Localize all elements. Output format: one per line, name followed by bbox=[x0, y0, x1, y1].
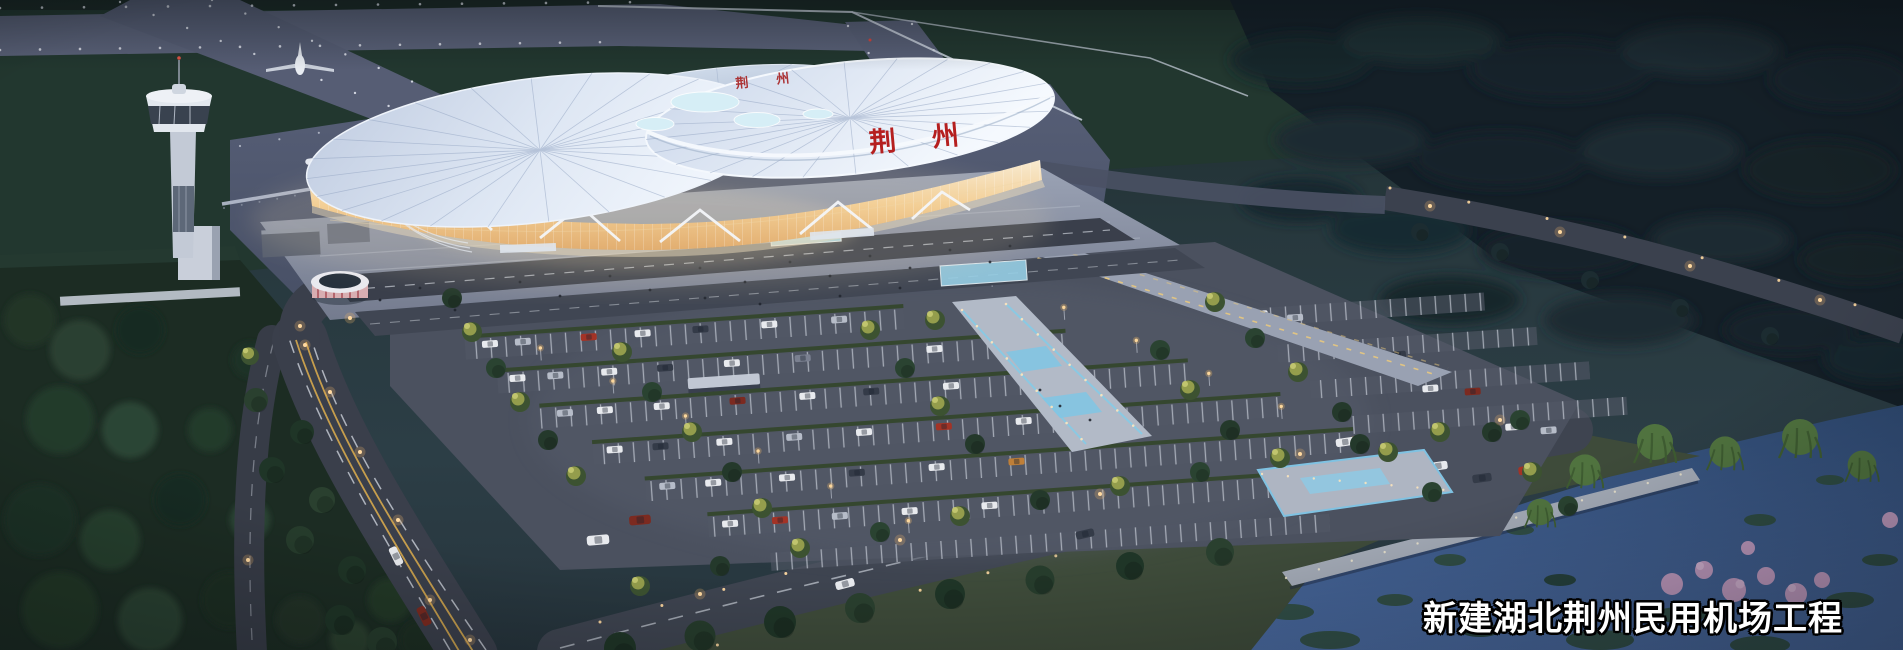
airport-rendering-scene: 荆州 荆州 新建湖北荆州民用机场工程 bbox=[0, 0, 1903, 650]
vignette-overlay bbox=[0, 0, 1903, 650]
top-darkening bbox=[0, 0, 1903, 70]
project-title-watermark: 新建湖北荆州民用机场工程 bbox=[1423, 591, 1843, 640]
scene-canvas: 荆州 荆州 bbox=[0, 0, 1903, 650]
